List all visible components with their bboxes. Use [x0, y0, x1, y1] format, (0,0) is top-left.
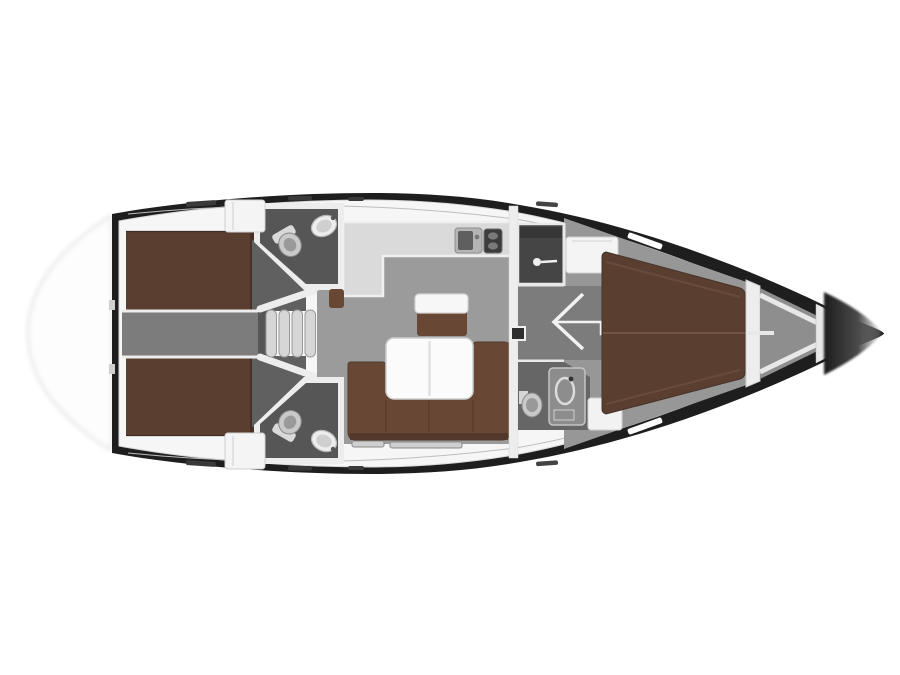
step — [279, 310, 290, 357]
floor-plan-canvas — [0, 0, 900, 675]
galley-stove — [484, 229, 502, 253]
bow-section — [746, 280, 881, 387]
cockpit-locker-slot — [352, 441, 384, 447]
faucet — [331, 447, 335, 451]
corridor-floor — [122, 312, 262, 356]
deck-hatch — [288, 466, 312, 471]
deck-hatch — [348, 466, 364, 470]
nav-seat-cushion — [415, 294, 468, 313]
deck-hatch — [348, 197, 364, 201]
galley-stool — [329, 289, 344, 308]
burner — [488, 232, 498, 239]
nav-seat — [415, 294, 468, 336]
electrical-panel — [511, 327, 525, 340]
faucet — [331, 216, 335, 220]
swim-platform-arc — [28, 216, 112, 450]
cockpit-locker-slot — [390, 442, 462, 448]
step — [305, 310, 316, 357]
aft-berth-port — [126, 232, 250, 311]
step — [266, 310, 277, 357]
deck-hatch — [536, 460, 558, 466]
aft-berth-starboard — [126, 356, 250, 435]
transom-notch — [109, 364, 115, 374]
bow-tip-shadow — [824, 292, 881, 375]
wardrobe-aft-starboard — [225, 433, 265, 469]
shower-shelf — [520, 227, 562, 238]
salon-table — [386, 338, 473, 399]
deck-hatch — [288, 196, 312, 201]
yacht-floor-plan — [0, 0, 900, 675]
wardrobe-aft-port — [225, 200, 265, 232]
locker-box — [225, 200, 265, 232]
deck-hatch — [536, 201, 558, 207]
sink-bowl — [458, 231, 473, 250]
galley-sink-unit — [455, 228, 482, 253]
faucet — [569, 377, 574, 382]
burner — [488, 242, 498, 249]
sofa-backrest-shadow — [350, 433, 508, 440]
step — [292, 310, 303, 357]
locker-box — [225, 433, 265, 469]
vanity-sink — [549, 368, 585, 425]
faucet — [475, 235, 480, 240]
transom-notch — [109, 300, 115, 310]
toilet-bowl-inner — [526, 398, 538, 412]
